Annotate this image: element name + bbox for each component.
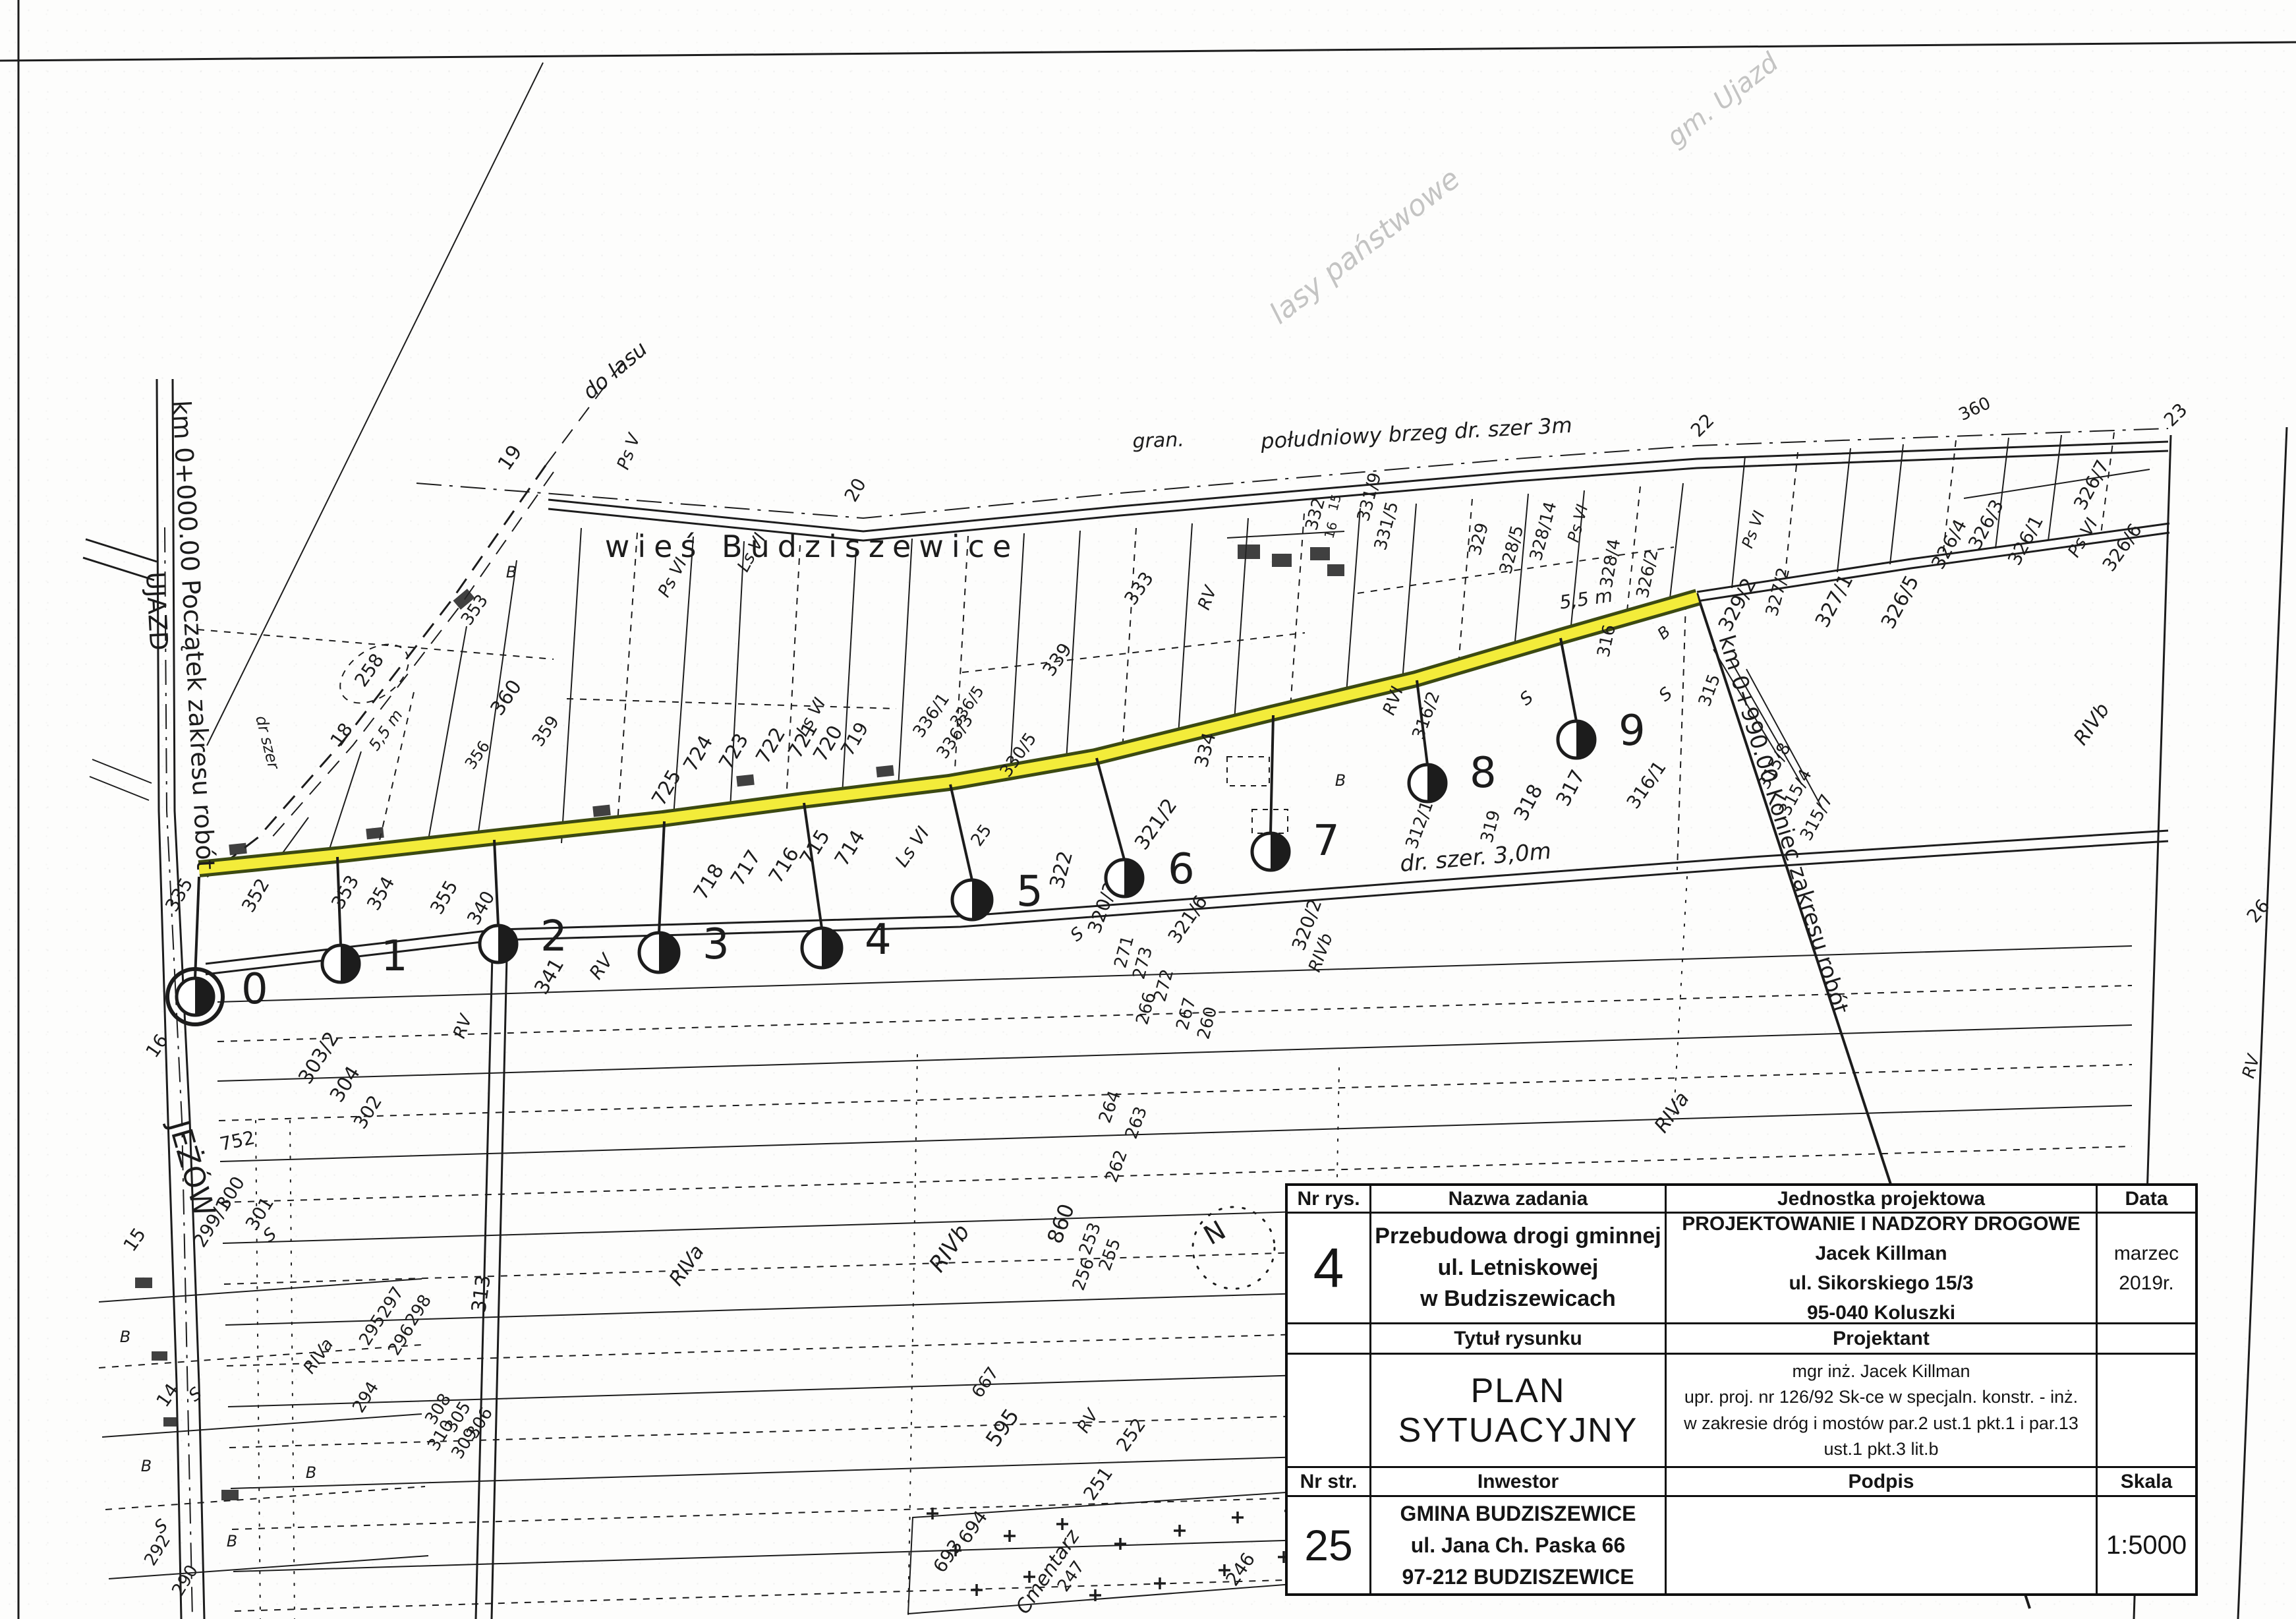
marker-leader-line bbox=[195, 877, 199, 978]
marker-number: 3 bbox=[703, 920, 730, 969]
marker-number: 7 bbox=[1313, 817, 1340, 866]
map-label: 290 bbox=[168, 1562, 202, 1600]
map-label: 251 bbox=[1079, 1463, 1117, 1504]
design-unit-line: 95-040 Koluszki bbox=[1807, 1298, 1955, 1325]
map-label: 335 bbox=[161, 874, 197, 916]
map-label: 315 bbox=[1695, 672, 1725, 709]
date-value: marzec 2019r. bbox=[2098, 1214, 2195, 1324]
cemetery-cross-icon bbox=[1004, 1530, 1016, 1542]
map-label: 326/3 bbox=[1964, 496, 2008, 553]
design-unit-line: Jacek Killman bbox=[1815, 1239, 1947, 1268]
map-label: 716 bbox=[764, 843, 804, 887]
map-label: 326/2 bbox=[1633, 548, 1663, 601]
marker-number: 4 bbox=[865, 916, 892, 964]
marker-leader-line bbox=[659, 821, 664, 933]
task-name: Przebudowa drogi gminnej ul. Letniskowej… bbox=[1371, 1214, 1667, 1324]
map-label: 16 bbox=[1321, 520, 1340, 541]
map-label: gm. Ujazd bbox=[1661, 47, 1785, 152]
scale-value: 1:5000 bbox=[2098, 1497, 2195, 1593]
date-line: 2019r. bbox=[2119, 1268, 2173, 1298]
marker-leader-line bbox=[804, 803, 822, 928]
map-label: 328/14 bbox=[1526, 500, 1561, 563]
map-label: B bbox=[306, 1463, 316, 1482]
map-label: B bbox=[1654, 622, 1675, 643]
map-label: 725 bbox=[647, 766, 686, 810]
map-label: 312/1 bbox=[1402, 798, 1438, 852]
map-label: 294 bbox=[349, 1378, 383, 1417]
map-label: B bbox=[141, 1457, 152, 1475]
investor-line: 97-212 BUDZISZEWICE bbox=[1402, 1561, 1634, 1593]
map-label: 264 bbox=[1095, 1088, 1125, 1126]
map-label: gran. bbox=[1132, 428, 1184, 454]
map-label: 718 bbox=[689, 860, 729, 904]
map-label: 304 bbox=[326, 1062, 365, 1106]
titleblock-header-jednostka-projektowa: Jednostka projektowa bbox=[1667, 1186, 2098, 1214]
map-label: 313 bbox=[467, 1274, 496, 1314]
titleblock-header-inwestor: Inwestor bbox=[1371, 1466, 1667, 1497]
marker-half-fill bbox=[1124, 860, 1143, 897]
map-label: S bbox=[1655, 684, 1677, 706]
map-label: dr szer bbox=[252, 714, 283, 773]
map-label: 722 bbox=[751, 724, 790, 768]
pond-outline bbox=[1193, 1207, 1275, 1289]
map-label: S bbox=[1516, 688, 1537, 710]
map-label: 326/5 bbox=[1877, 572, 1924, 633]
signature-cell bbox=[1667, 1497, 2098, 1593]
map-label: 355 bbox=[426, 877, 462, 918]
map-label: 319 bbox=[1477, 808, 1505, 845]
map-label: 318 bbox=[1510, 780, 1548, 825]
marker-number: 5 bbox=[1016, 868, 1043, 916]
map-label: 595 bbox=[981, 1404, 1024, 1452]
map-label: RV bbox=[1074, 1405, 1103, 1436]
cemetery-cross-icon bbox=[971, 1584, 983, 1596]
map-label: B bbox=[227, 1532, 237, 1550]
cemetery-cross-icon bbox=[1174, 1525, 1186, 1537]
marker-half-fill bbox=[195, 978, 214, 1015]
map-label: 667 bbox=[968, 1363, 1003, 1401]
map-label: RV bbox=[449, 1011, 476, 1041]
map-label: lasy państwowe bbox=[1263, 162, 1466, 330]
titleblock-empty-cell bbox=[2098, 1355, 2195, 1468]
date-line: marzec bbox=[2114, 1239, 2179, 1268]
titleblock-header-tytul-rysunku: Tytuł rysunku bbox=[1371, 1322, 1667, 1355]
marker-leader-line bbox=[1097, 758, 1124, 860]
designer-credentials: mgr inż. Jacek Killman upr. proj. nr 126… bbox=[1667, 1355, 2098, 1468]
map-label: 353 bbox=[327, 871, 363, 913]
map-label: 715 bbox=[795, 825, 835, 869]
marker-leader-line bbox=[1561, 638, 1576, 721]
marker-half-fill bbox=[1271, 833, 1289, 870]
map-label: S bbox=[185, 1384, 206, 1406]
map-label: 5,5 m bbox=[1558, 585, 1614, 614]
map-label: 258 bbox=[350, 649, 388, 691]
map-label: Ls VI bbox=[891, 823, 934, 871]
map-label: RIVa bbox=[1650, 1088, 1694, 1137]
titleblock-empty-cell bbox=[1288, 1322, 1371, 1355]
map-label: 262 bbox=[1102, 1148, 1132, 1185]
map-label: 327/2 bbox=[1762, 566, 1794, 618]
map-label: do lasu bbox=[577, 336, 652, 404]
titleblock-empty-cell bbox=[1288, 1355, 1371, 1468]
marker-number: 8 bbox=[1470, 749, 1497, 798]
map-label: RIVa bbox=[300, 1335, 338, 1378]
map-label: 333 bbox=[1120, 568, 1158, 609]
station-marker: 1 bbox=[322, 857, 408, 982]
task-name-line: ul. Letniskowej bbox=[1438, 1252, 1599, 1284]
map-label: 723 bbox=[714, 730, 753, 774]
titleblock-header-nr-str: Nr str. bbox=[1288, 1466, 1371, 1497]
marker-number: 6 bbox=[1168, 845, 1195, 894]
map-label: 322 bbox=[1046, 848, 1078, 891]
design-unit-line: ul. Sikorskiego 15/3 bbox=[1789, 1268, 1973, 1298]
marker-number: 0 bbox=[241, 965, 268, 1014]
marker-leader-line bbox=[950, 784, 972, 880]
map-label: Ps V bbox=[614, 430, 645, 472]
marker-number: 1 bbox=[381, 932, 408, 981]
map-label: wieś Budziszewice bbox=[605, 529, 1019, 564]
map-label: 292 bbox=[140, 1531, 175, 1570]
map-label: 359 bbox=[529, 712, 563, 750]
cemetery-cross-icon bbox=[1232, 1512, 1244, 1523]
designer-line: mgr inż. Jacek Killman bbox=[1792, 1359, 1970, 1384]
map-label: 256 bbox=[1069, 1256, 1099, 1293]
map-label: 327/1 bbox=[1811, 570, 1858, 632]
titleblock-header-projektant: Projektant bbox=[1667, 1322, 2098, 1355]
map-label: 693 bbox=[929, 1535, 967, 1577]
map-label: 16 bbox=[141, 1030, 172, 1061]
map-label: 352 bbox=[237, 875, 273, 916]
designer-line: w zakresie dróg i mostów par.2 ust.1 pkt… bbox=[1684, 1411, 2079, 1436]
map-label: 719 bbox=[836, 719, 873, 760]
marker-number: 2 bbox=[540, 912, 567, 961]
investor-line: GMINA BUDZISZEWICE bbox=[1400, 1498, 1636, 1529]
map-label: 5,5 m bbox=[365, 706, 407, 754]
marker-half-fill bbox=[1576, 721, 1595, 758]
designer-line: upr. proj. nr 126/92 Sk-ce w specjaln. k… bbox=[1684, 1384, 2078, 1410]
map-label: km 0+990.00 Koniec zakresu robót bbox=[1713, 632, 1853, 1017]
titleblock-header-nazwa-zadania: Nazwa zadania bbox=[1371, 1186, 1667, 1214]
task-name-line: Przebudowa drogi gminnej bbox=[1375, 1221, 1661, 1252]
map-label: 326/6 bbox=[2098, 519, 2146, 575]
map-label: RIVa bbox=[665, 1241, 709, 1290]
marker-number: 9 bbox=[1619, 707, 1646, 755]
marker-half-fill bbox=[1427, 765, 1446, 802]
map-label: S bbox=[151, 1516, 172, 1538]
task-name-line: w Budziszewicach bbox=[1420, 1283, 1616, 1315]
map-label: RIVb bbox=[924, 1220, 975, 1277]
map-label: 360 bbox=[486, 676, 527, 720]
map-label: 717 bbox=[726, 846, 766, 890]
titleblock-header-podpis: Podpis bbox=[1667, 1466, 2098, 1497]
map-label: południowy brzeg dr. szer 3m bbox=[1259, 413, 1572, 454]
station-marker: 3 bbox=[639, 821, 730, 972]
map-label: UJAZD bbox=[140, 571, 173, 651]
map-label: Ps VI bbox=[1564, 502, 1592, 544]
map-label: B bbox=[506, 563, 517, 581]
map-label: 354 bbox=[362, 873, 399, 914]
map-label: 263 bbox=[1122, 1104, 1151, 1142]
marker-leader-line bbox=[1271, 715, 1273, 833]
marker-half-fill bbox=[341, 945, 359, 982]
titleblock-header-skala: Skala bbox=[2098, 1466, 2195, 1497]
design-unit-line: PROJEKTOWANIE I NADZORY DROGOWE bbox=[1682, 1214, 2081, 1239]
cemetery-cross-icon bbox=[1114, 1538, 1126, 1550]
map-label: 329/2 bbox=[1714, 574, 1761, 635]
drawing-title: PLAN SYTUACYJNY bbox=[1371, 1355, 1667, 1468]
map-label: N bbox=[1199, 1215, 1231, 1251]
map-label: 25 bbox=[967, 821, 996, 850]
titleblock-header-data: Data bbox=[2098, 1186, 2195, 1214]
designer-line: ust.1 pkt.3 lit.b bbox=[1823, 1436, 1938, 1462]
map-label: 302 bbox=[349, 1092, 386, 1133]
map-label: 724 bbox=[679, 732, 718, 776]
map-label: 23 bbox=[2160, 399, 2192, 431]
investor-line: ul. Jana Ch. Paska 66 bbox=[1411, 1529, 1626, 1561]
cemetery-cross-icon bbox=[1154, 1577, 1166, 1589]
map-label: RV bbox=[585, 949, 618, 984]
investor: GMINA BUDZISZEWICE ul. Jana Ch. Paska 66… bbox=[1371, 1497, 1667, 1593]
page-number: 25 bbox=[1288, 1497, 1371, 1593]
map-label: 301 bbox=[241, 1193, 278, 1235]
map-label: 20 bbox=[840, 475, 871, 506]
drawing-number: 4 bbox=[1288, 1214, 1371, 1324]
title-block: Nr rys. Nazwa zadania Jednostka projekto… bbox=[1285, 1183, 2198, 1596]
titleblock-empty-cell bbox=[2098, 1322, 2195, 1355]
design-unit: PROJEKTOWANIE I NADZORY DROGOWE Jacek Ki… bbox=[1667, 1214, 2098, 1324]
map-label: 260 bbox=[1193, 1005, 1221, 1042]
marker-leader-line bbox=[494, 840, 498, 926]
map-label: B bbox=[120, 1328, 130, 1346]
cemetery-cross-icon bbox=[927, 1508, 938, 1519]
map-label: 317 bbox=[1552, 766, 1590, 810]
map-label: 328/4 bbox=[1597, 537, 1625, 589]
map-label: 860 bbox=[1042, 1200, 1079, 1247]
map-label: RV bbox=[1194, 582, 1221, 612]
scanned-site-plan-page: km 0+000.00 Początek zakresu robótUJAZDJ… bbox=[0, 0, 2296, 1619]
map-label: 26 bbox=[2243, 895, 2274, 927]
map-label: Ps VI bbox=[1738, 508, 1768, 550]
map-label: 326/4 bbox=[1927, 515, 1971, 573]
map-label: 19 bbox=[494, 441, 527, 475]
map-label: 246 bbox=[1221, 1548, 1259, 1590]
map-label: 266 bbox=[1132, 990, 1160, 1027]
map-label: B bbox=[1335, 771, 1346, 790]
marker-leader-line bbox=[337, 857, 341, 945]
map-label: 340 bbox=[463, 887, 499, 929]
map-label: 316/1 bbox=[1622, 757, 1671, 813]
map-label: 360 bbox=[1956, 394, 1994, 425]
map-label: 15 bbox=[119, 1223, 150, 1255]
map-label: 298 bbox=[401, 1291, 436, 1330]
marker-half-fill bbox=[659, 933, 679, 972]
station-marker: 5 bbox=[950, 784, 1043, 920]
marker-half-fill bbox=[822, 928, 842, 968]
map-label: 752 bbox=[217, 1127, 256, 1155]
map-label: 14 bbox=[152, 1379, 183, 1411]
map-label: 22 bbox=[1686, 409, 1719, 442]
map-label: 714 bbox=[830, 826, 870, 870]
map-label: 316/2 bbox=[1409, 689, 1445, 742]
map-label: RIVb bbox=[2069, 699, 2114, 750]
marker-half-fill bbox=[498, 926, 517, 962]
station-marker: 7 bbox=[1252, 715, 1340, 870]
titleblock-header-nr-rys: Nr rys. bbox=[1288, 1186, 1371, 1214]
